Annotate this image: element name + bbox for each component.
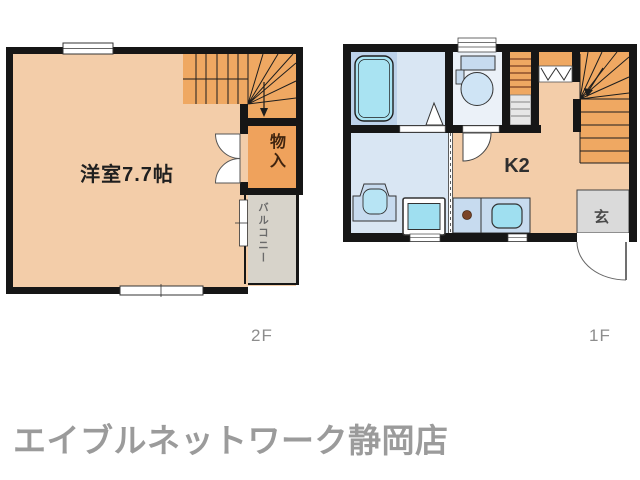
- wall-toilet-stairs: [502, 52, 510, 125]
- floor-plan-1f: [343, 38, 637, 280]
- kitchen-label: K2: [498, 155, 536, 178]
- wall-above-storage: [240, 118, 303, 126]
- wall-bath-toilet: [445, 52, 453, 133]
- entrance-label: 玄: [594, 206, 609, 227]
- staircase-1f-upper-run: [510, 52, 531, 95]
- balcony-outside-gap: [248, 286, 296, 295]
- agency-name: エイブルネットワーク静岡店: [13, 414, 449, 462]
- wall-1f-bottom: [343, 233, 577, 242]
- entrance-door-swing: [577, 242, 626, 280]
- balcony-bottom-edge: [248, 283, 299, 285]
- wall-storage-top-stub: [240, 126, 248, 134]
- staircase-1f-lower-run: [510, 95, 531, 125]
- floorplan-drawing: [0, 0, 640, 480]
- wall-2f-right-balcony: [296, 195, 299, 284]
- window-2f-bottom: [120, 284, 203, 297]
- entrance-opening: [577, 233, 629, 242]
- floorplan-canvas: 洋室7.7帖 物入 バルコニー K2 玄 2F 1F エイブルネットワーク静岡店: [0, 0, 640, 480]
- closet-folding-door: [539, 66, 572, 82]
- wall-storage-bottom-stub: [240, 182, 248, 188]
- wall-closet-right: [572, 52, 580, 82]
- window-2f-top: [63, 43, 113, 54]
- balcony-left-edge-lower: [244, 246, 246, 284]
- wall-1f-right: [629, 44, 637, 242]
- storage-label: 物入: [263, 133, 287, 187]
- floor-label-2f: 2F: [251, 326, 273, 346]
- room-label-2f: 洋室7.7帖: [62, 158, 192, 187]
- kitchen-sink: [492, 204, 522, 228]
- wall-2f-left: [6, 47, 13, 294]
- wall-stub-below-stairs: [240, 104, 248, 118]
- bathroom-door-opening: [400, 126, 445, 132]
- window-washroom-bottom: [410, 234, 440, 242]
- stove-burner: [463, 211, 472, 220]
- balcony-label: バルコニー: [256, 202, 271, 282]
- washing-machine: [403, 198, 445, 235]
- window-toilet: [458, 38, 496, 52]
- closet-1f: [539, 52, 572, 66]
- toilet-door-opening: [463, 126, 499, 132]
- floor-label-1f: 1F: [589, 326, 611, 346]
- wall-stairs-closet: [531, 52, 539, 133]
- washroom-kitchen-divider: [448, 133, 453, 233]
- wall-2f-top: [6, 47, 303, 54]
- staircase-2f-landing: [248, 104, 296, 118]
- window-kitchen-bottom: [508, 234, 527, 242]
- wall-above-balcony: [240, 188, 303, 195]
- wall-1f-left: [343, 44, 351, 242]
- wall-stub-stairs-1f: [573, 99, 581, 132]
- bathtub: [355, 56, 393, 121]
